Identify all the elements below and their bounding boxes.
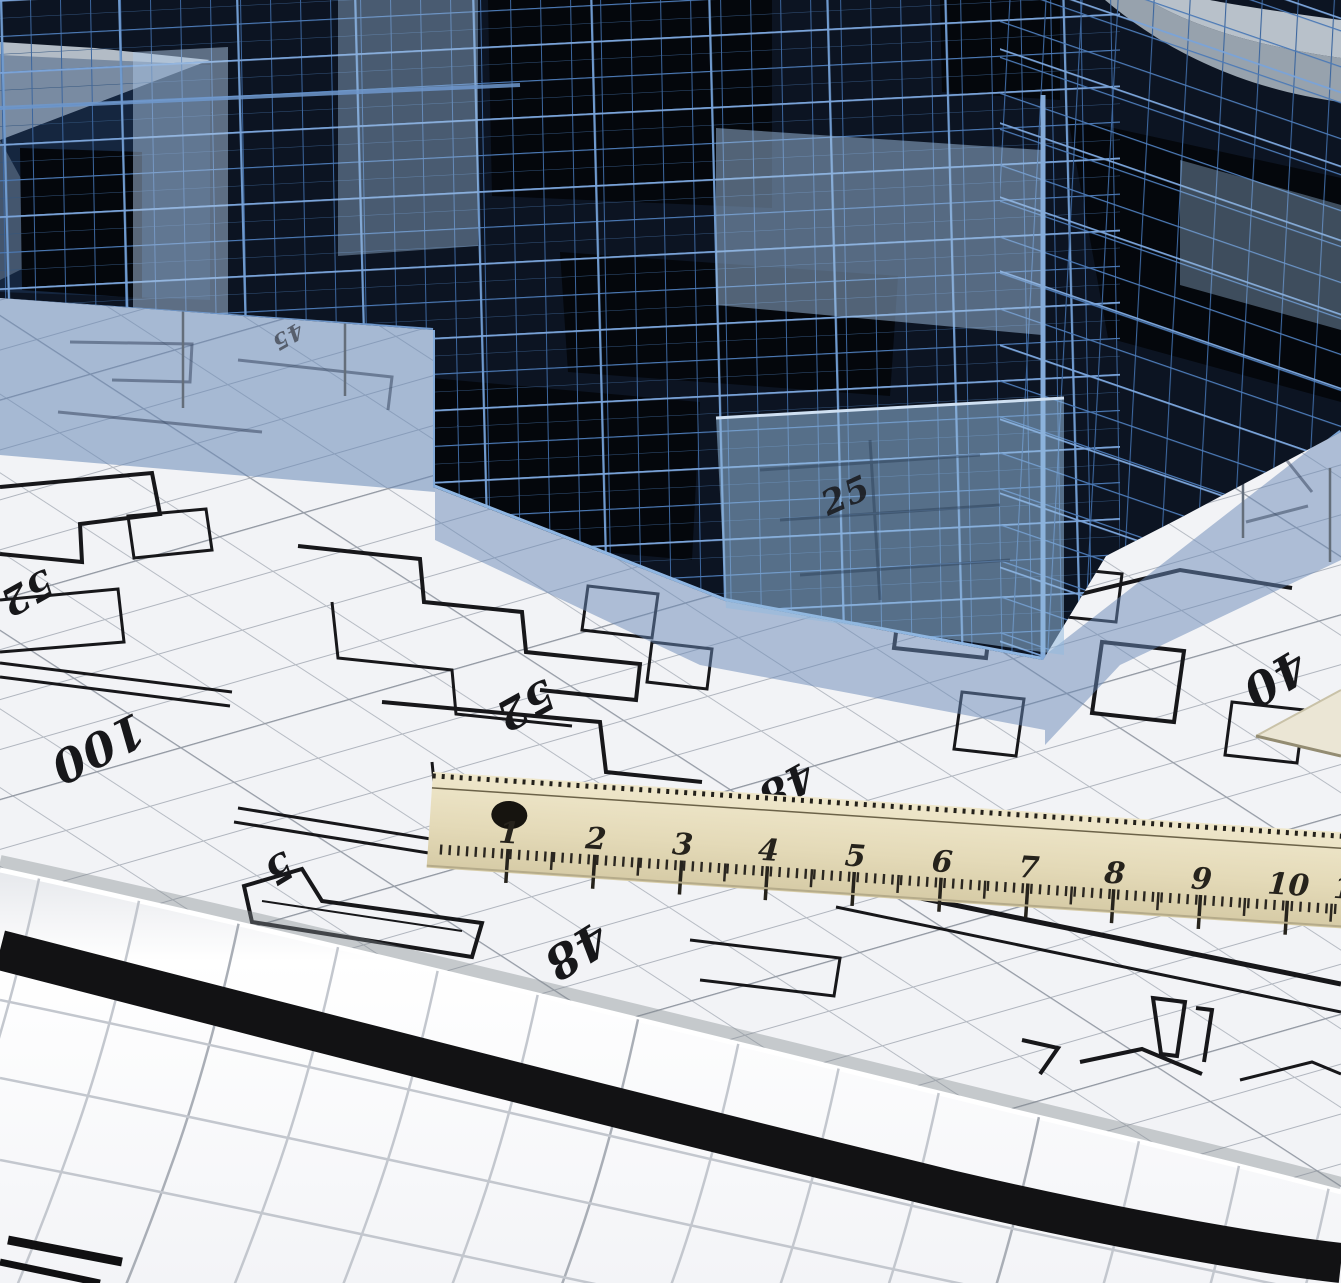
- ruler-number-2: 2: [583, 821, 607, 857]
- ruler-number-7: 7: [1017, 850, 1040, 886]
- ruler-number-4: 4: [757, 833, 780, 869]
- ruler-number-11: 11: [1332, 871, 1341, 909]
- ruler-number-5: 5: [844, 838, 867, 874]
- ruler-number-10: 10: [1266, 866, 1310, 904]
- ruler-number-6: 6: [931, 844, 954, 880]
- scene-illustration: 52 100 52 48 40 5 48 40 45 25: [0, 0, 1341, 1283]
- ruler-number-8: 8: [1102, 856, 1126, 892]
- scene-stage: 52 100 52 48 40 5 48 40 45 25: [0, 0, 1341, 1283]
- ruler-number-9: 9: [1190, 861, 1213, 897]
- ruler-number-1: 1: [498, 815, 521, 851]
- ruler-number-3: 3: [671, 827, 694, 863]
